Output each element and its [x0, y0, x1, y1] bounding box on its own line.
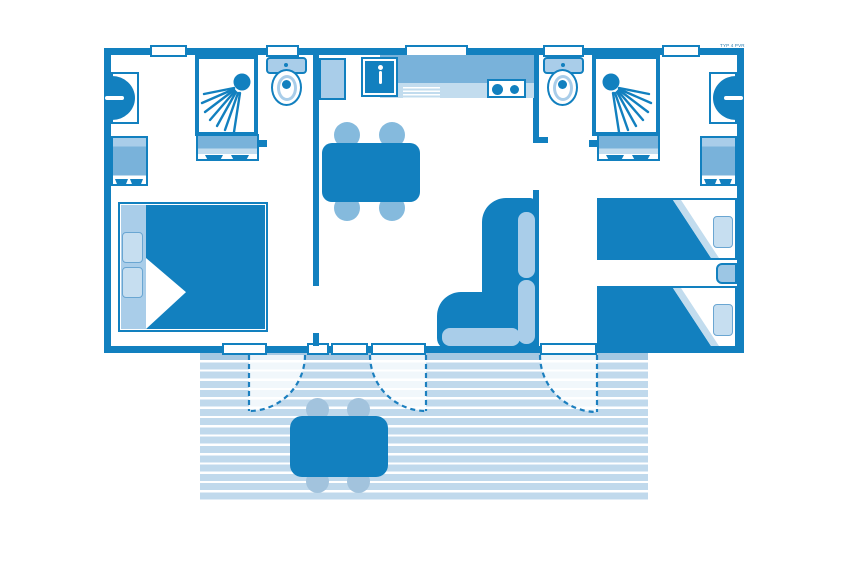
kitchen-faucet-icon	[378, 65, 383, 70]
vanity-left	[196, 134, 259, 161]
toilet-right-dot	[561, 63, 565, 67]
dining-table	[322, 143, 420, 202]
floor-plan: TYP 4 PVR	[0, 0, 848, 565]
washbasin-faucet-icon	[724, 96, 743, 101]
interior-wall-right-tick	[539, 137, 548, 143]
vanity-handle	[589, 140, 599, 147]
nightstand	[716, 263, 737, 284]
window	[222, 343, 267, 355]
swing-zone-middle	[370, 355, 426, 411]
pillow	[713, 304, 733, 336]
door-opening	[540, 343, 597, 355]
toilet-left-dot	[284, 63, 288, 67]
door-opening	[371, 343, 426, 355]
window	[266, 45, 299, 57]
kitchen-fridge-unit	[319, 58, 346, 100]
window	[662, 45, 700, 57]
vanity-right	[597, 134, 660, 161]
kitchen-faucet-icon	[379, 71, 383, 84]
window	[331, 343, 368, 355]
hob-burner-icon	[510, 85, 519, 94]
vanity-handle	[257, 140, 267, 147]
hob-burner-icon	[492, 84, 503, 95]
sofa-back-cushion	[518, 280, 535, 344]
pillow	[122, 267, 143, 298]
wardrobe-right	[700, 136, 737, 186]
toilet-left-drain	[282, 80, 291, 89]
pillow	[122, 232, 143, 263]
wardrobe-left	[111, 136, 148, 186]
toilet-right-drain	[558, 80, 567, 89]
terrace-table	[290, 416, 388, 477]
swing-zone-right	[540, 355, 597, 412]
window	[150, 45, 187, 57]
plan-code-label: TYP 4 PVR	[720, 43, 745, 48]
shower-stall-right	[592, 55, 660, 136]
swing-zone-left	[249, 355, 305, 411]
kitchen-drainer	[403, 85, 440, 98]
shower-stall-left	[195, 55, 258, 136]
door-swing-zones	[180, 340, 660, 440]
window	[543, 45, 584, 57]
interior-wall-left-stub	[313, 333, 319, 346]
washbasin-faucet-icon	[105, 96, 124, 101]
sofa-back-cushion	[518, 212, 535, 278]
sofa-seat-cushion	[442, 328, 520, 346]
pillow	[713, 216, 733, 248]
